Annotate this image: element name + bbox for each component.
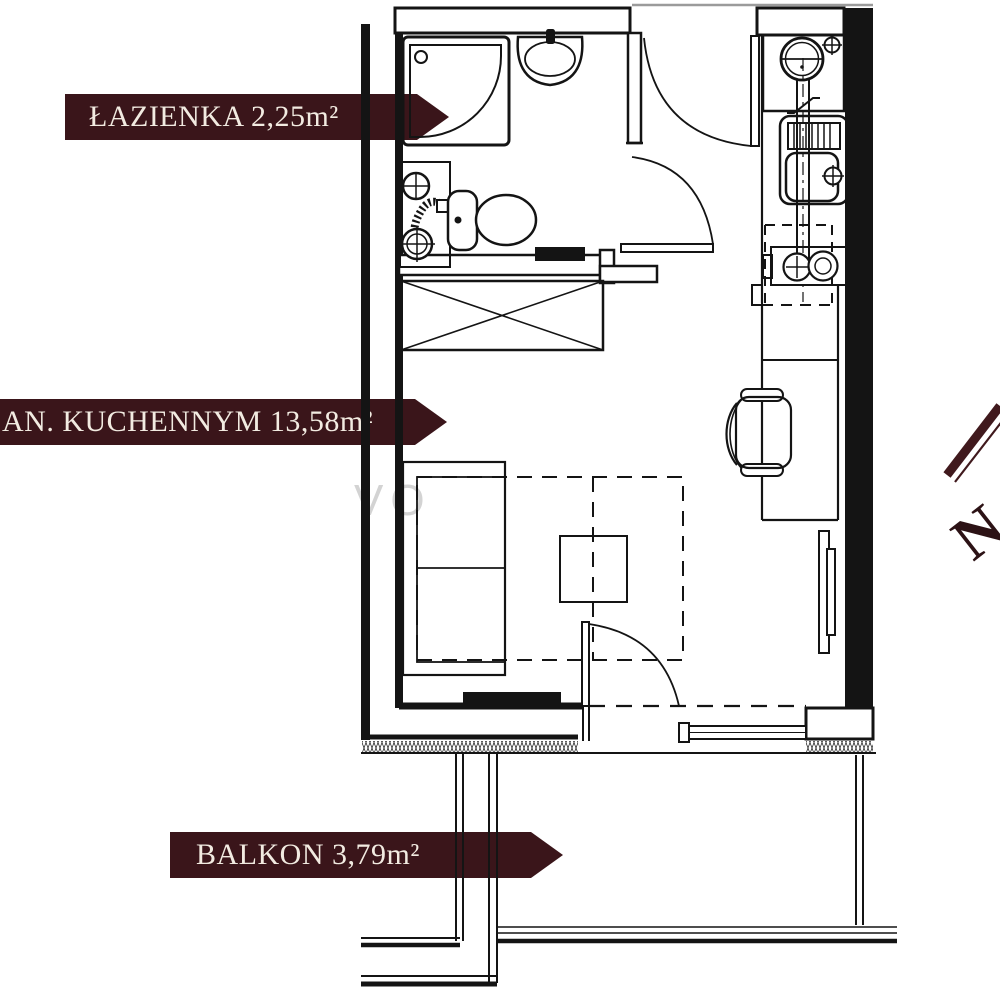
window-sill-marker <box>463 692 561 706</box>
right-wall <box>845 8 873 708</box>
burner-right <box>809 252 838 281</box>
entrance-door-leaf <box>751 36 759 146</box>
bathroom-door <box>621 157 713 252</box>
bottom-wall-right <box>806 708 873 739</box>
entrance-door-swing <box>644 38 751 146</box>
kitchen-annex <box>762 35 853 303</box>
bathroom-door-leaf <box>621 244 713 252</box>
balcony-door <box>582 622 806 742</box>
compass-arrow-icon <box>947 406 1000 475</box>
compass-north-indicator: N <box>940 406 1000 573</box>
kitchen-round-sink <box>781 38 823 80</box>
bathroom-fixtures <box>399 29 585 267</box>
valve-symbol-top <box>822 35 842 55</box>
desk-area <box>727 285 839 653</box>
floor-plan-page: VO ŁAZIENKA 2,25m² AN. KUCHENNYM 13,58m²… <box>0 0 1000 1000</box>
balcony-door-swing <box>589 624 679 706</box>
hall-wall-stub <box>600 266 657 282</box>
balcony-door-leaf <box>582 622 589 706</box>
shower-tray <box>403 37 509 145</box>
toilet <box>448 191 536 250</box>
chair-seat <box>736 397 791 468</box>
floor-plan-drawing: N <box>0 0 1000 1000</box>
entrance-door <box>644 36 759 146</box>
insulation-hatch-right <box>806 741 873 753</box>
top-wall-bathroom <box>395 8 630 33</box>
bathroom-right-wall <box>628 33 641 143</box>
left-wall-outer <box>361 24 370 740</box>
radiator <box>819 531 835 653</box>
sliding-window-panel <box>679 723 806 742</box>
coffee-table <box>560 536 627 602</box>
living-room-furniture <box>401 281 683 706</box>
washing-machine-connection <box>399 162 452 267</box>
sink-faucet <box>546 29 555 44</box>
kitchen-sink-unit <box>780 116 848 204</box>
bathroom-door-swing <box>632 157 713 244</box>
toilet-tank <box>448 191 477 250</box>
top-wall-kitchen <box>757 8 844 35</box>
bathroom-sink <box>518 29 583 85</box>
insulation-hatch-left <box>362 741 578 753</box>
drainer <box>788 123 840 149</box>
sofa <box>403 462 505 675</box>
compass-n-letter: N <box>940 492 1000 573</box>
chair-armrest-top <box>741 389 783 401</box>
toilet-bowl <box>476 195 536 245</box>
balcony-railing <box>361 753 897 984</box>
shower-drain <box>415 51 427 63</box>
wardrobe <box>401 281 603 350</box>
threshold-marker <box>535 247 585 261</box>
chair-armrest-bottom <box>741 464 783 476</box>
office-chair <box>727 389 792 476</box>
